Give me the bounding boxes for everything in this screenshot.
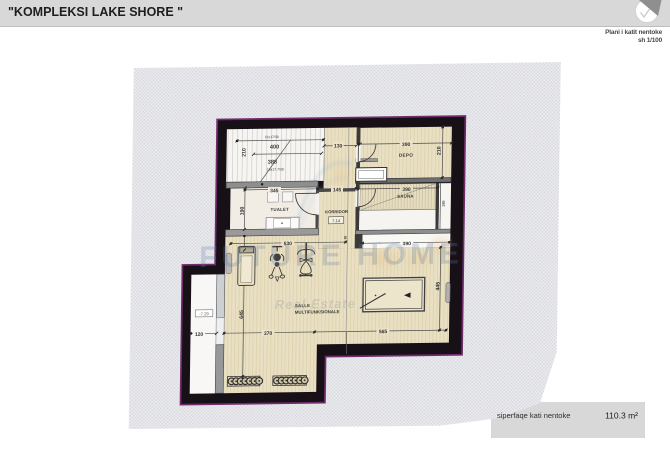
svg-text:645: 645 bbox=[239, 310, 245, 319]
svg-text:145: 145 bbox=[333, 187, 342, 193]
svg-text:DEPO: DEPO bbox=[399, 153, 413, 158]
svg-text:FUTURE HOME: FUTURE HOME bbox=[199, 237, 463, 274]
svg-text:390: 390 bbox=[402, 142, 411, 148]
svg-text:-7.29: -7.29 bbox=[199, 311, 209, 316]
svg-text:445: 445 bbox=[435, 282, 441, 291]
svg-text:370: 370 bbox=[264, 331, 273, 337]
svg-text:SAUNA: SAUNA bbox=[397, 194, 414, 199]
svg-text:345: 345 bbox=[270, 188, 279, 194]
svg-text:390: 390 bbox=[402, 187, 411, 193]
svg-text:195: 195 bbox=[442, 200, 446, 206]
svg-text:120: 120 bbox=[195, 332, 204, 338]
svg-text:11x17/30: 11x17/30 bbox=[265, 135, 279, 139]
svg-text:190: 190 bbox=[240, 207, 246, 216]
svg-text:210: 210 bbox=[241, 148, 247, 157]
svg-text:565: 565 bbox=[379, 329, 388, 335]
svg-text:16x17.7/30: 16x17.7/30 bbox=[267, 167, 284, 171]
svg-text:7.14: 7.14 bbox=[332, 218, 341, 223]
svg-text:KORRIDOR: KORRIDOR bbox=[325, 209, 348, 214]
svg-text:TUALET: TUALET bbox=[270, 207, 289, 212]
svg-text:210: 210 bbox=[436, 146, 442, 155]
svg-text:110.3 m²: 110.3 m² bbox=[605, 411, 638, 421]
svg-text:388: 388 bbox=[268, 160, 277, 166]
svg-text:Real Estate: Real Estate bbox=[275, 296, 356, 312]
svg-text:siperfaqe kati nentoke: siperfaqe kati nentoke bbox=[497, 411, 570, 420]
svg-text:400: 400 bbox=[270, 144, 279, 150]
svg-text:130: 130 bbox=[334, 143, 343, 149]
